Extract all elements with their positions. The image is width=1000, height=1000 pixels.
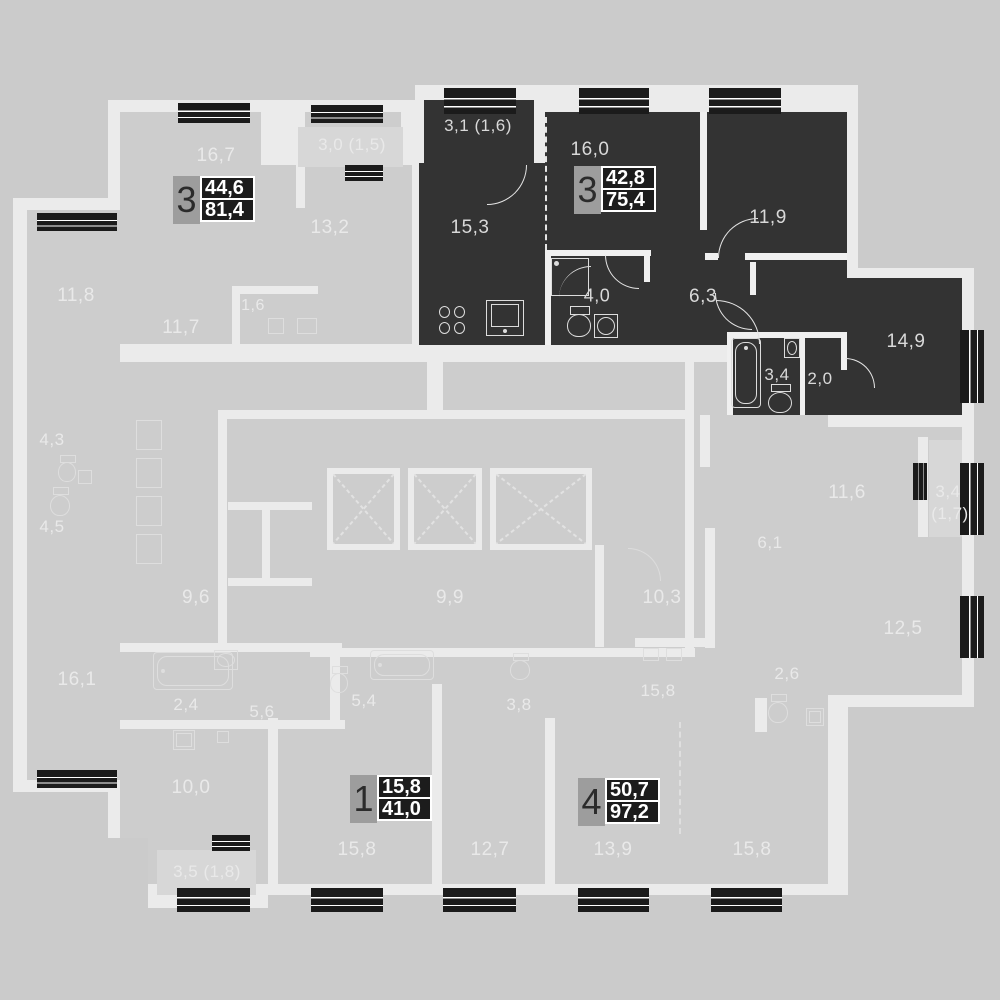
window-bar xyxy=(311,888,383,912)
room-area-label: 16,1 xyxy=(58,669,97,691)
apartment-rooms-count: 1 xyxy=(350,775,377,823)
sq-icon xyxy=(217,731,229,743)
window-bar xyxy=(37,213,117,231)
apartment-badge[interactable]: 342,875,4 xyxy=(574,166,656,214)
window-bar xyxy=(37,770,117,788)
room-area-label: 3,4 xyxy=(935,482,960,502)
room-area-label: 3,0 (1,5) xyxy=(318,135,386,155)
sq-icon xyxy=(136,420,162,450)
apartment-badge[interactable]: 344,681,4 xyxy=(173,176,255,224)
room-area-label: 2,6 xyxy=(774,664,799,684)
window-bar xyxy=(444,88,516,114)
window-bar xyxy=(212,835,250,851)
wall-segment xyxy=(261,112,300,165)
area-total-value: 41,0 xyxy=(377,797,432,821)
wall-segment xyxy=(310,648,695,657)
sink-icon xyxy=(486,300,524,336)
wall-segment xyxy=(268,718,278,888)
area-living-value: 15,8 xyxy=(377,775,432,797)
apartment-areas: 42,875,4 xyxy=(601,166,656,214)
wall-segment xyxy=(700,415,710,467)
room-area-label: 11,6 xyxy=(828,482,866,504)
elevator-shaft xyxy=(327,468,400,550)
sq-icon xyxy=(136,496,162,526)
window-bar xyxy=(579,88,649,114)
room-area-label: 3,1 (1,6) xyxy=(444,116,512,136)
window-bar xyxy=(960,330,984,403)
room-area-label: 9,6 xyxy=(182,587,210,609)
area-living-value: 44,6 xyxy=(200,176,255,198)
wall-segment xyxy=(635,638,713,647)
room-area-label: 10,3 xyxy=(643,587,682,609)
window-bar xyxy=(913,463,927,500)
wall-segment xyxy=(120,720,345,729)
room-area-label: 10,0 xyxy=(172,777,211,799)
wall-segment xyxy=(427,356,443,412)
window-bar xyxy=(960,596,984,658)
area-total-value: 81,4 xyxy=(200,198,255,222)
room-area-label: 2,4 xyxy=(173,695,198,715)
apartment-rooms-count: 3 xyxy=(173,176,200,224)
wall-segment xyxy=(228,502,312,510)
basin-icon xyxy=(784,338,800,358)
room-area-label: 2,0 xyxy=(807,369,832,389)
room-area-label: 16,0 xyxy=(571,139,610,161)
window-bar xyxy=(709,88,781,114)
washer-icon xyxy=(806,708,824,726)
room-area-label: 3,4 xyxy=(764,365,789,385)
toilet-icon xyxy=(768,384,794,414)
wall-segment xyxy=(232,286,318,294)
basin-icon xyxy=(594,314,618,338)
room-area-label: 6,1 xyxy=(757,533,782,553)
room-area-label: (1,7) xyxy=(931,504,968,524)
apartment-areas: 15,841,0 xyxy=(377,775,432,823)
sq-icon xyxy=(643,648,659,661)
window-bar xyxy=(578,888,649,912)
window-bar xyxy=(443,888,516,912)
apartment-badge[interactable]: 115,841,0 xyxy=(350,775,432,823)
area-living-value: 42,8 xyxy=(601,166,656,188)
sq-icon xyxy=(666,648,682,661)
room-area-label: 12,5 xyxy=(884,618,923,640)
wall-segment xyxy=(228,578,312,586)
elevator-shaft xyxy=(490,468,592,550)
virtual-divider-dashed-line xyxy=(679,722,681,834)
room-area-label: 12,7 xyxy=(471,839,510,861)
room-area-label: 15,8 xyxy=(640,681,675,701)
room-area-label: 15,3 xyxy=(451,217,490,239)
area-living-value: 50,7 xyxy=(605,778,660,800)
room-area-label: 15,8 xyxy=(338,839,377,861)
wall-segment xyxy=(218,410,227,650)
sq-icon xyxy=(78,470,92,484)
room-area-label: 5,6 xyxy=(249,702,274,722)
washer-icon xyxy=(173,730,195,750)
background-patch xyxy=(108,838,148,908)
window-bar xyxy=(960,463,984,535)
floor-plan-canvas: 16,73,0 (1,5)13,21,611,811,74,34,59,616,… xyxy=(0,0,1000,1000)
wall-segment xyxy=(755,698,767,732)
tub-v-icon xyxy=(731,338,761,408)
virtual-divider-dashed-line xyxy=(545,117,547,250)
wall-segment xyxy=(705,528,715,648)
room-area-label: 6,3 xyxy=(689,286,717,308)
window-bar xyxy=(345,165,383,181)
toilet-icon xyxy=(58,455,78,483)
room-area-label: 5,4 xyxy=(351,691,376,711)
wall-segment-selected-apartment xyxy=(745,253,847,260)
room-area-label: 4,5 xyxy=(39,517,64,537)
elevator-shaft xyxy=(408,468,482,550)
room-area-label: 16,7 xyxy=(197,145,236,167)
wall-segment-selected-apartment xyxy=(750,262,756,295)
wall-segment-selected-apartment xyxy=(800,338,805,415)
tub-h-icon xyxy=(370,650,434,680)
wall-segment xyxy=(220,410,693,419)
wall-segment-selected-apartment xyxy=(644,250,650,282)
window-bar xyxy=(177,888,250,912)
window-bar xyxy=(178,103,250,123)
window-bar xyxy=(711,888,782,912)
apartment-areas: 44,681,4 xyxy=(200,176,255,224)
room-area-label: 9,9 xyxy=(436,587,464,609)
room-area-label: 4,0 xyxy=(584,286,611,307)
apartment-rooms-count: 3 xyxy=(574,166,601,214)
area-total-value: 97,2 xyxy=(605,800,660,824)
room-area-label: 15,8 xyxy=(733,839,772,861)
room-area-label: 1,6 xyxy=(241,297,265,315)
wall-segment xyxy=(685,356,694,657)
wall-segment-selected-apartment xyxy=(700,112,707,230)
wall-segment xyxy=(232,286,240,344)
sq-icon xyxy=(297,318,317,334)
room-area-label: 4,3 xyxy=(39,430,64,450)
sq-icon xyxy=(136,534,162,564)
basin-icon xyxy=(214,650,238,670)
room-area-label: 11,8 xyxy=(57,285,95,307)
room-area-label: 3,8 xyxy=(506,695,531,715)
apartment-areas: 50,797,2 xyxy=(605,778,660,826)
room-area-label: 13,9 xyxy=(594,839,633,861)
room-area-label: 11,7 xyxy=(162,317,200,339)
toilet-icon xyxy=(567,306,593,338)
window-bar xyxy=(311,105,383,123)
apartment-badge[interactable]: 450,797,2 xyxy=(578,778,660,826)
wall-segment xyxy=(595,545,604,647)
room-area-label: 13,2 xyxy=(311,217,350,239)
toilet-icon xyxy=(330,666,350,694)
sq-icon xyxy=(268,318,284,334)
toilet-icon xyxy=(510,653,532,681)
toilet-icon xyxy=(50,487,72,517)
wall-segment xyxy=(432,684,442,888)
room-area-label: 14,9 xyxy=(887,331,926,353)
room-area-label: 11,9 xyxy=(749,207,787,229)
area-total-value: 75,4 xyxy=(601,188,656,212)
wall-segment xyxy=(401,112,415,165)
room-area-label: 3,5 (1,8) xyxy=(173,862,241,882)
wall-segment-selected-apartment xyxy=(705,253,718,260)
sq-icon xyxy=(136,458,162,488)
stove-icon xyxy=(438,305,468,337)
apartment-rooms-count: 4 xyxy=(578,778,605,826)
toilet-icon xyxy=(768,694,790,724)
wall-segment xyxy=(262,502,270,586)
wall-segment xyxy=(545,718,555,888)
